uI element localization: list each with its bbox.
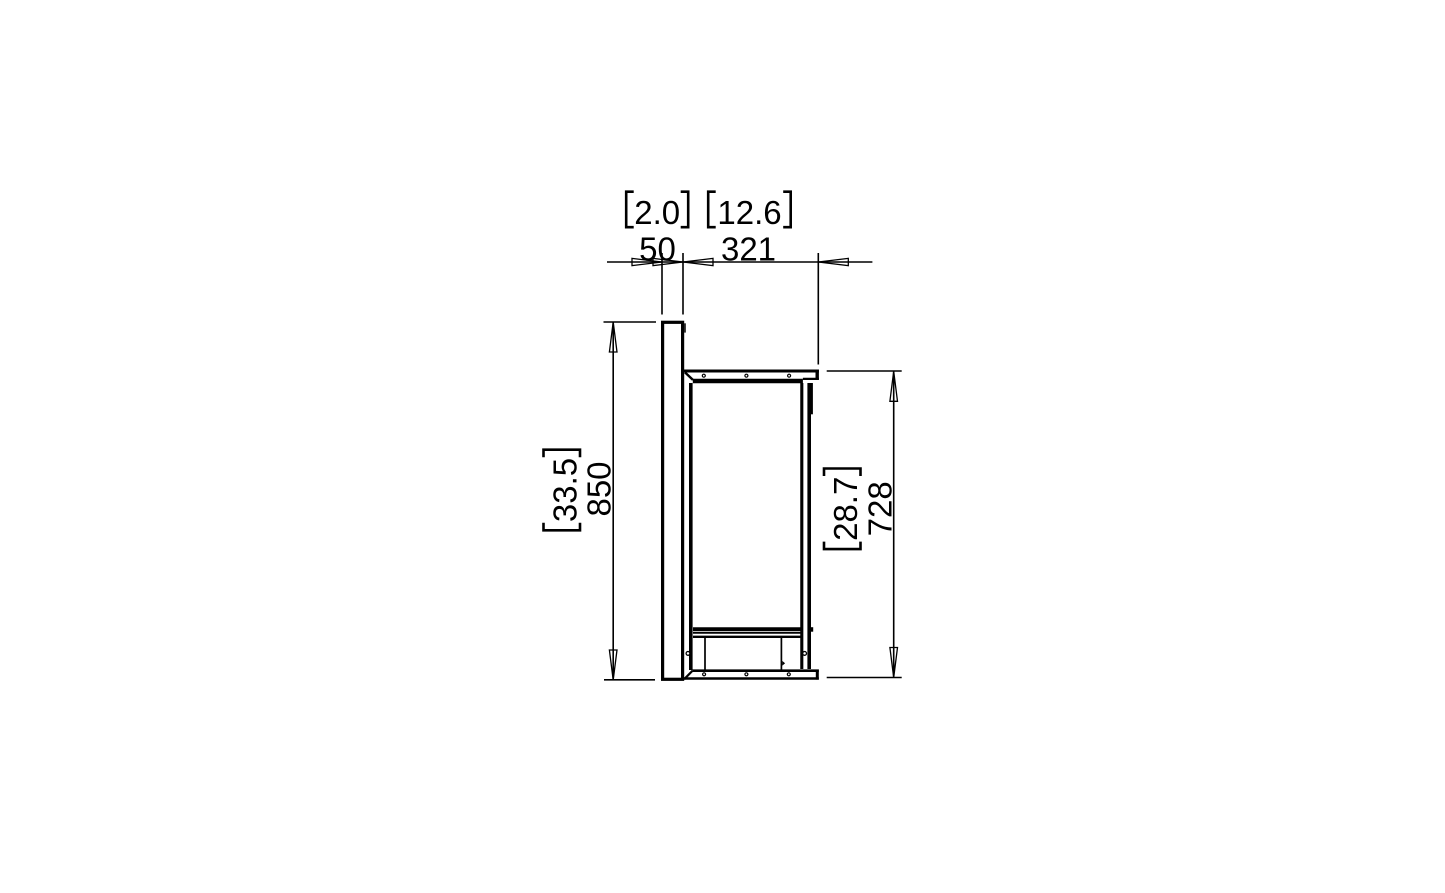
svg-text:50: 50 [639,230,676,267]
svg-text:33.5: 33.5 [547,458,584,522]
svg-text:728: 728 [861,481,898,536]
svg-text:28.7: 28.7 [827,477,864,541]
svg-text:2.0: 2.0 [634,194,680,231]
svg-text:850: 850 [580,461,617,516]
svg-text:321: 321 [721,230,776,267]
svg-text:12.6: 12.6 [717,194,781,231]
